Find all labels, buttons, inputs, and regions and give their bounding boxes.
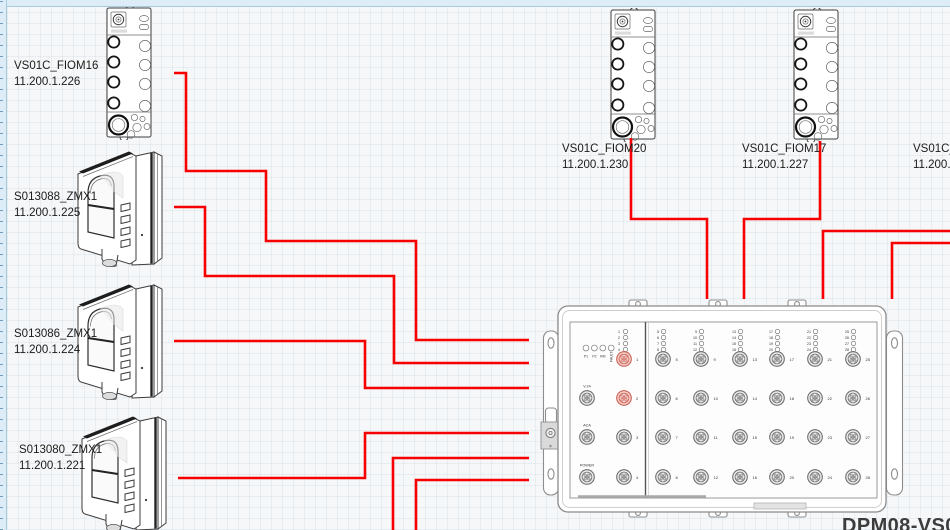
- switch-port-aca[interactable]: [580, 430, 595, 445]
- device-name: S013086_ZMX1: [14, 327, 97, 343]
- device-ip: 11.200.1.227: [742, 158, 826, 174]
- switch-port-4[interactable]: [617, 470, 632, 485]
- switch-small-label: 24: [828, 475, 833, 480]
- device-name: VS01C_FIOM17: [742, 142, 826, 158]
- switch-small-label: 19: [769, 342, 773, 346]
- port-led: [699, 341, 703, 345]
- status-led-rm: [600, 345, 606, 351]
- switch-small-label: 21: [828, 357, 833, 362]
- port-led: [738, 329, 742, 333]
- switch-small-label: 20: [790, 475, 795, 480]
- switch-small-label: 10: [693, 336, 697, 340]
- switch-small-label: 16: [732, 348, 736, 352]
- port-led: [661, 335, 665, 339]
- switch-small-label: 13: [753, 357, 758, 362]
- switch-port-16[interactable]: [733, 470, 748, 485]
- status-led-p1: [583, 345, 589, 351]
- switch-small-label: 14: [753, 396, 758, 401]
- port-led: [775, 341, 779, 345]
- switch-small-label: 18: [790, 396, 795, 401]
- status-led-p2: [592, 345, 598, 351]
- switch-port-13[interactable]: [733, 352, 748, 367]
- switch-small-label: RM: [600, 355, 605, 359]
- device-name: VS01C_FIOM20: [562, 142, 646, 158]
- diagram-stage: P1P2RMFAULT12345678910111213141516171819…: [0, 0, 950, 530]
- label-fiom-offscreen: VS01C_F 11.200.1: [913, 142, 950, 173]
- switch-port-11[interactable]: [694, 430, 709, 445]
- device-name: S013080_ZMX1: [19, 443, 102, 459]
- switch-port-6[interactable]: [656, 391, 671, 406]
- connection-offscreen-bottom-1[interactable]: [393, 458, 529, 530]
- switch-port-14[interactable]: [733, 391, 748, 406]
- device-ip: 11.200.1.230: [562, 158, 646, 174]
- connection-fiom16[interactable]: [174, 73, 529, 340]
- switch-small-label: 13: [732, 330, 736, 334]
- port-led: [661, 347, 665, 351]
- switch-port-v24[interactable]: [580, 391, 595, 406]
- switch-small-label: 27: [866, 435, 871, 440]
- switch-small-label: 15: [753, 435, 758, 440]
- switch-small-label: 26: [866, 396, 871, 401]
- switch-small-label: 23: [828, 435, 833, 440]
- switch-port-7[interactable]: [656, 430, 671, 445]
- port-led: [813, 347, 817, 351]
- switch-port-5[interactable]: [656, 352, 671, 367]
- switch-port-25[interactable]: [846, 352, 861, 367]
- switch-small-label: 11: [693, 342, 697, 346]
- switch-small-label: 25: [845, 330, 849, 334]
- switch-port-10[interactable]: [694, 391, 709, 406]
- switch-port-3[interactable]: [617, 430, 632, 445]
- switch-small-label: 15: [732, 342, 736, 346]
- switch-small-label: 3: [618, 342, 620, 346]
- switch-port-12[interactable]: [694, 470, 709, 485]
- fiom20-module-graphic[interactable]: [611, 8, 655, 144]
- switch-small-label: 24: [807, 348, 811, 352]
- connection-camera_221[interactable]: [178, 433, 529, 478]
- switch-port-17[interactable]: [770, 352, 785, 367]
- connection-camera_224[interactable]: [174, 341, 529, 388]
- port-led: [775, 329, 779, 333]
- switch-small-label: 17: [769, 330, 773, 334]
- fiom17-module-graphic[interactable]: [794, 8, 838, 144]
- switch-small-label: POWER: [580, 464, 595, 468]
- label-camera-225: S013088_ZMX1 11.200.1.225: [14, 190, 97, 221]
- switch-port-19[interactable]: [770, 430, 785, 445]
- label-fiom17: VS01C_FIOM17 11.200.1.227: [742, 142, 826, 173]
- switch-port-1[interactable]: [617, 352, 632, 367]
- port-led: [851, 347, 855, 351]
- device-ip: 11.200.1.225: [14, 206, 97, 222]
- switch-graphic[interactable]: P1P2RMFAULT12345678910111213141516171819…: [541, 300, 903, 517]
- port-led: [813, 335, 817, 339]
- switch-small-label: 22: [828, 396, 833, 401]
- port-led: [851, 341, 855, 345]
- switch-port-8[interactable]: [656, 470, 671, 485]
- switch-small-label: 8: [657, 348, 659, 352]
- switch-port-20[interactable]: [770, 470, 785, 485]
- switch-small-label: P2: [592, 355, 596, 359]
- device-name: S013088_ZMX1: [14, 190, 97, 206]
- device-name: VS01C_F: [913, 142, 950, 158]
- status-led-fault: [608, 345, 614, 351]
- port-led: [623, 329, 627, 333]
- switch-small-label: 27: [845, 342, 849, 346]
- switch-port-27[interactable]: [846, 430, 861, 445]
- port-led: [699, 347, 703, 351]
- switch-port-22[interactable]: [808, 391, 823, 406]
- connection-offscreen-right-2[interactable]: [892, 243, 950, 299]
- switch-small-label: 10: [714, 396, 719, 401]
- label-fiom20: VS01C_FIOM20 11.200.1.230: [562, 142, 646, 173]
- switch-port-15[interactable]: [733, 430, 748, 445]
- port-led: [699, 329, 703, 333]
- switch-port-24[interactable]: [808, 470, 823, 485]
- port-led: [623, 347, 627, 351]
- label-camera-224: S013086_ZMX1 11.200.1.224: [14, 327, 97, 358]
- switch-small-label: 6: [657, 336, 659, 340]
- switch-small-label: 20: [769, 348, 773, 352]
- switch-small-label: V.24: [583, 385, 590, 389]
- connection-offscreen-bottom-2[interactable]: [416, 480, 529, 530]
- switch-small-label: 1: [618, 330, 620, 334]
- port-led: [623, 335, 627, 339]
- port-led: [775, 347, 779, 351]
- device-ip: 11.200.1.224: [14, 343, 97, 359]
- port-led: [813, 329, 817, 333]
- switch-port-2[interactable]: [617, 391, 632, 406]
- switch-port-21[interactable]: [808, 352, 823, 367]
- port-led: [738, 335, 742, 339]
- device-ip: 11.200.1.226: [14, 75, 98, 91]
- top-ruler: [0, 0, 950, 7]
- switch-port-23[interactable]: [808, 430, 823, 445]
- switch-port-28[interactable]: [846, 470, 861, 485]
- switch-model-title: DPM08-VS0: [842, 515, 950, 530]
- switch-small-label: 7: [657, 342, 659, 346]
- switch-small-label: 28: [866, 475, 871, 480]
- switch-small-label: 14: [732, 336, 736, 340]
- switch-small-label: P1: [584, 355, 588, 359]
- port-led: [813, 341, 817, 345]
- port-led: [738, 341, 742, 345]
- port-led: [623, 341, 627, 345]
- diagram-layer: P1P2RMFAULT12345678910111213141516171819…: [0, 0, 950, 530]
- switch-small-label: 16: [753, 475, 758, 480]
- switch-small-label: 17: [790, 357, 795, 362]
- switch-small-label: 22: [807, 336, 811, 340]
- fiom16-module-graphic[interactable]: [107, 6, 151, 142]
- switch-small-label: FAULT: [610, 352, 614, 362]
- port-led: [851, 329, 855, 333]
- switch-small-label: 19: [790, 435, 795, 440]
- device-ip: 11.200.1: [913, 158, 950, 174]
- switch-left-bracket: [541, 331, 560, 495]
- port-led: [661, 341, 665, 345]
- switch-small-label: 26: [845, 336, 849, 340]
- connection-fiom_offscreen[interactable]: [823, 231, 950, 299]
- port-led: [851, 335, 855, 339]
- port-led: [699, 335, 703, 339]
- port-led: [775, 335, 779, 339]
- switch-port-18[interactable]: [770, 391, 785, 406]
- switch-small-label: 5: [657, 330, 659, 334]
- switch-port-power[interactable]: [580, 470, 595, 485]
- switch-small-label: 25: [866, 357, 871, 362]
- switch-small-label: ACA: [583, 424, 591, 428]
- label-fiom16: VS01C_FIOM16 11.200.1.226: [14, 59, 98, 90]
- label-camera-221: S013080_ZMX1 11.200.1.221: [19, 443, 102, 474]
- port-led: [661, 329, 665, 333]
- left-ruler: [0, 0, 7, 530]
- switch-small-label: 12: [693, 348, 697, 352]
- switch-small-label: 18: [769, 336, 773, 340]
- switch-small-label: 4: [618, 348, 620, 352]
- switch-small-label: 21: [807, 330, 811, 334]
- switch-small-label: 28: [845, 348, 849, 352]
- switch-small-label: 23: [807, 342, 811, 346]
- port-led: [738, 347, 742, 351]
- device-name: VS01C_FIOM16: [14, 59, 98, 75]
- switch-port-26[interactable]: [846, 391, 861, 406]
- switch-small-label: 9: [695, 330, 697, 334]
- switch-small-label: 12: [714, 475, 719, 480]
- device-ip: 11.200.1.221: [19, 459, 102, 475]
- switch-small-label: 2: [618, 336, 620, 340]
- switch-port-9[interactable]: [694, 352, 709, 367]
